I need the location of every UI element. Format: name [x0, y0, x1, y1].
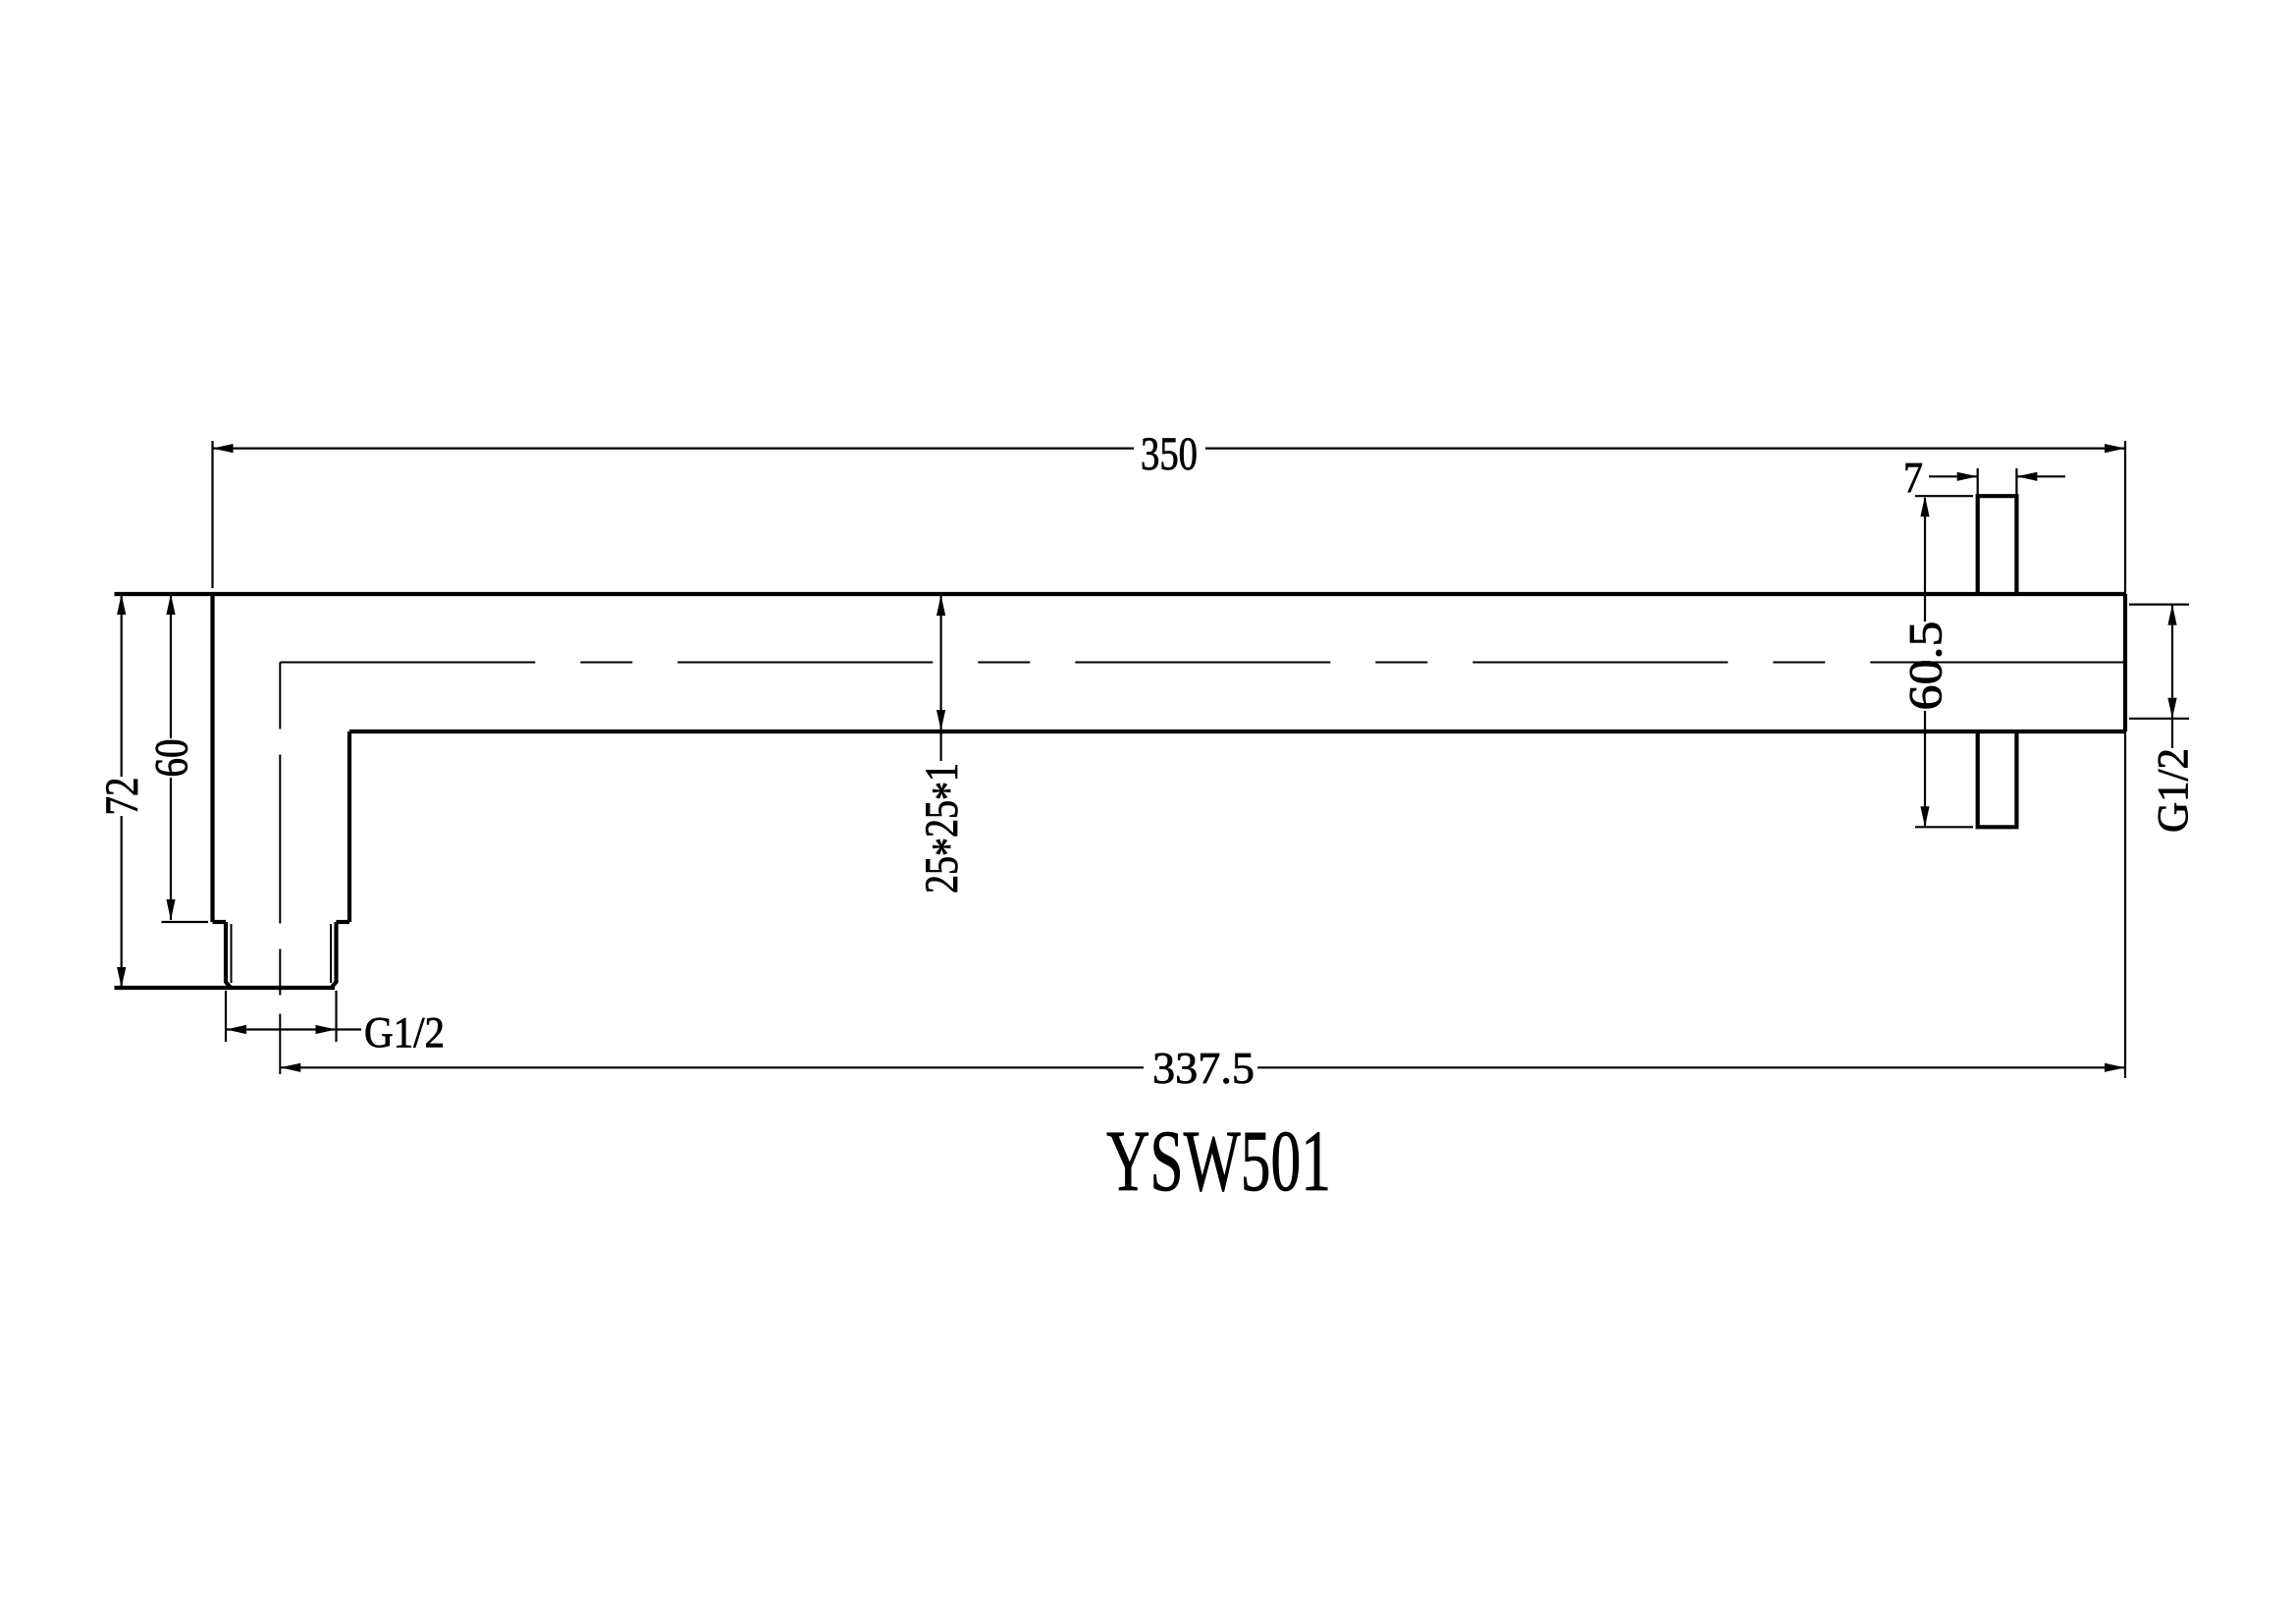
- svg-text:60.5: 60.5: [1900, 622, 1952, 711]
- svg-text:72: 72: [96, 778, 148, 816]
- svg-text:25*25*1: 25*25*1: [916, 763, 975, 893]
- svg-text:G1/2: G1/2: [364, 1008, 445, 1056]
- svg-text:60: 60: [146, 739, 198, 778]
- svg-text:337.5: 337.5: [1152, 1043, 1255, 1093]
- svg-text:G1/2: G1/2: [2149, 748, 2197, 833]
- svg-text:YSW501: YSW501: [1106, 1113, 1331, 1210]
- svg-text:350: 350: [1141, 428, 1198, 480]
- svg-text:7: 7: [1903, 454, 1923, 502]
